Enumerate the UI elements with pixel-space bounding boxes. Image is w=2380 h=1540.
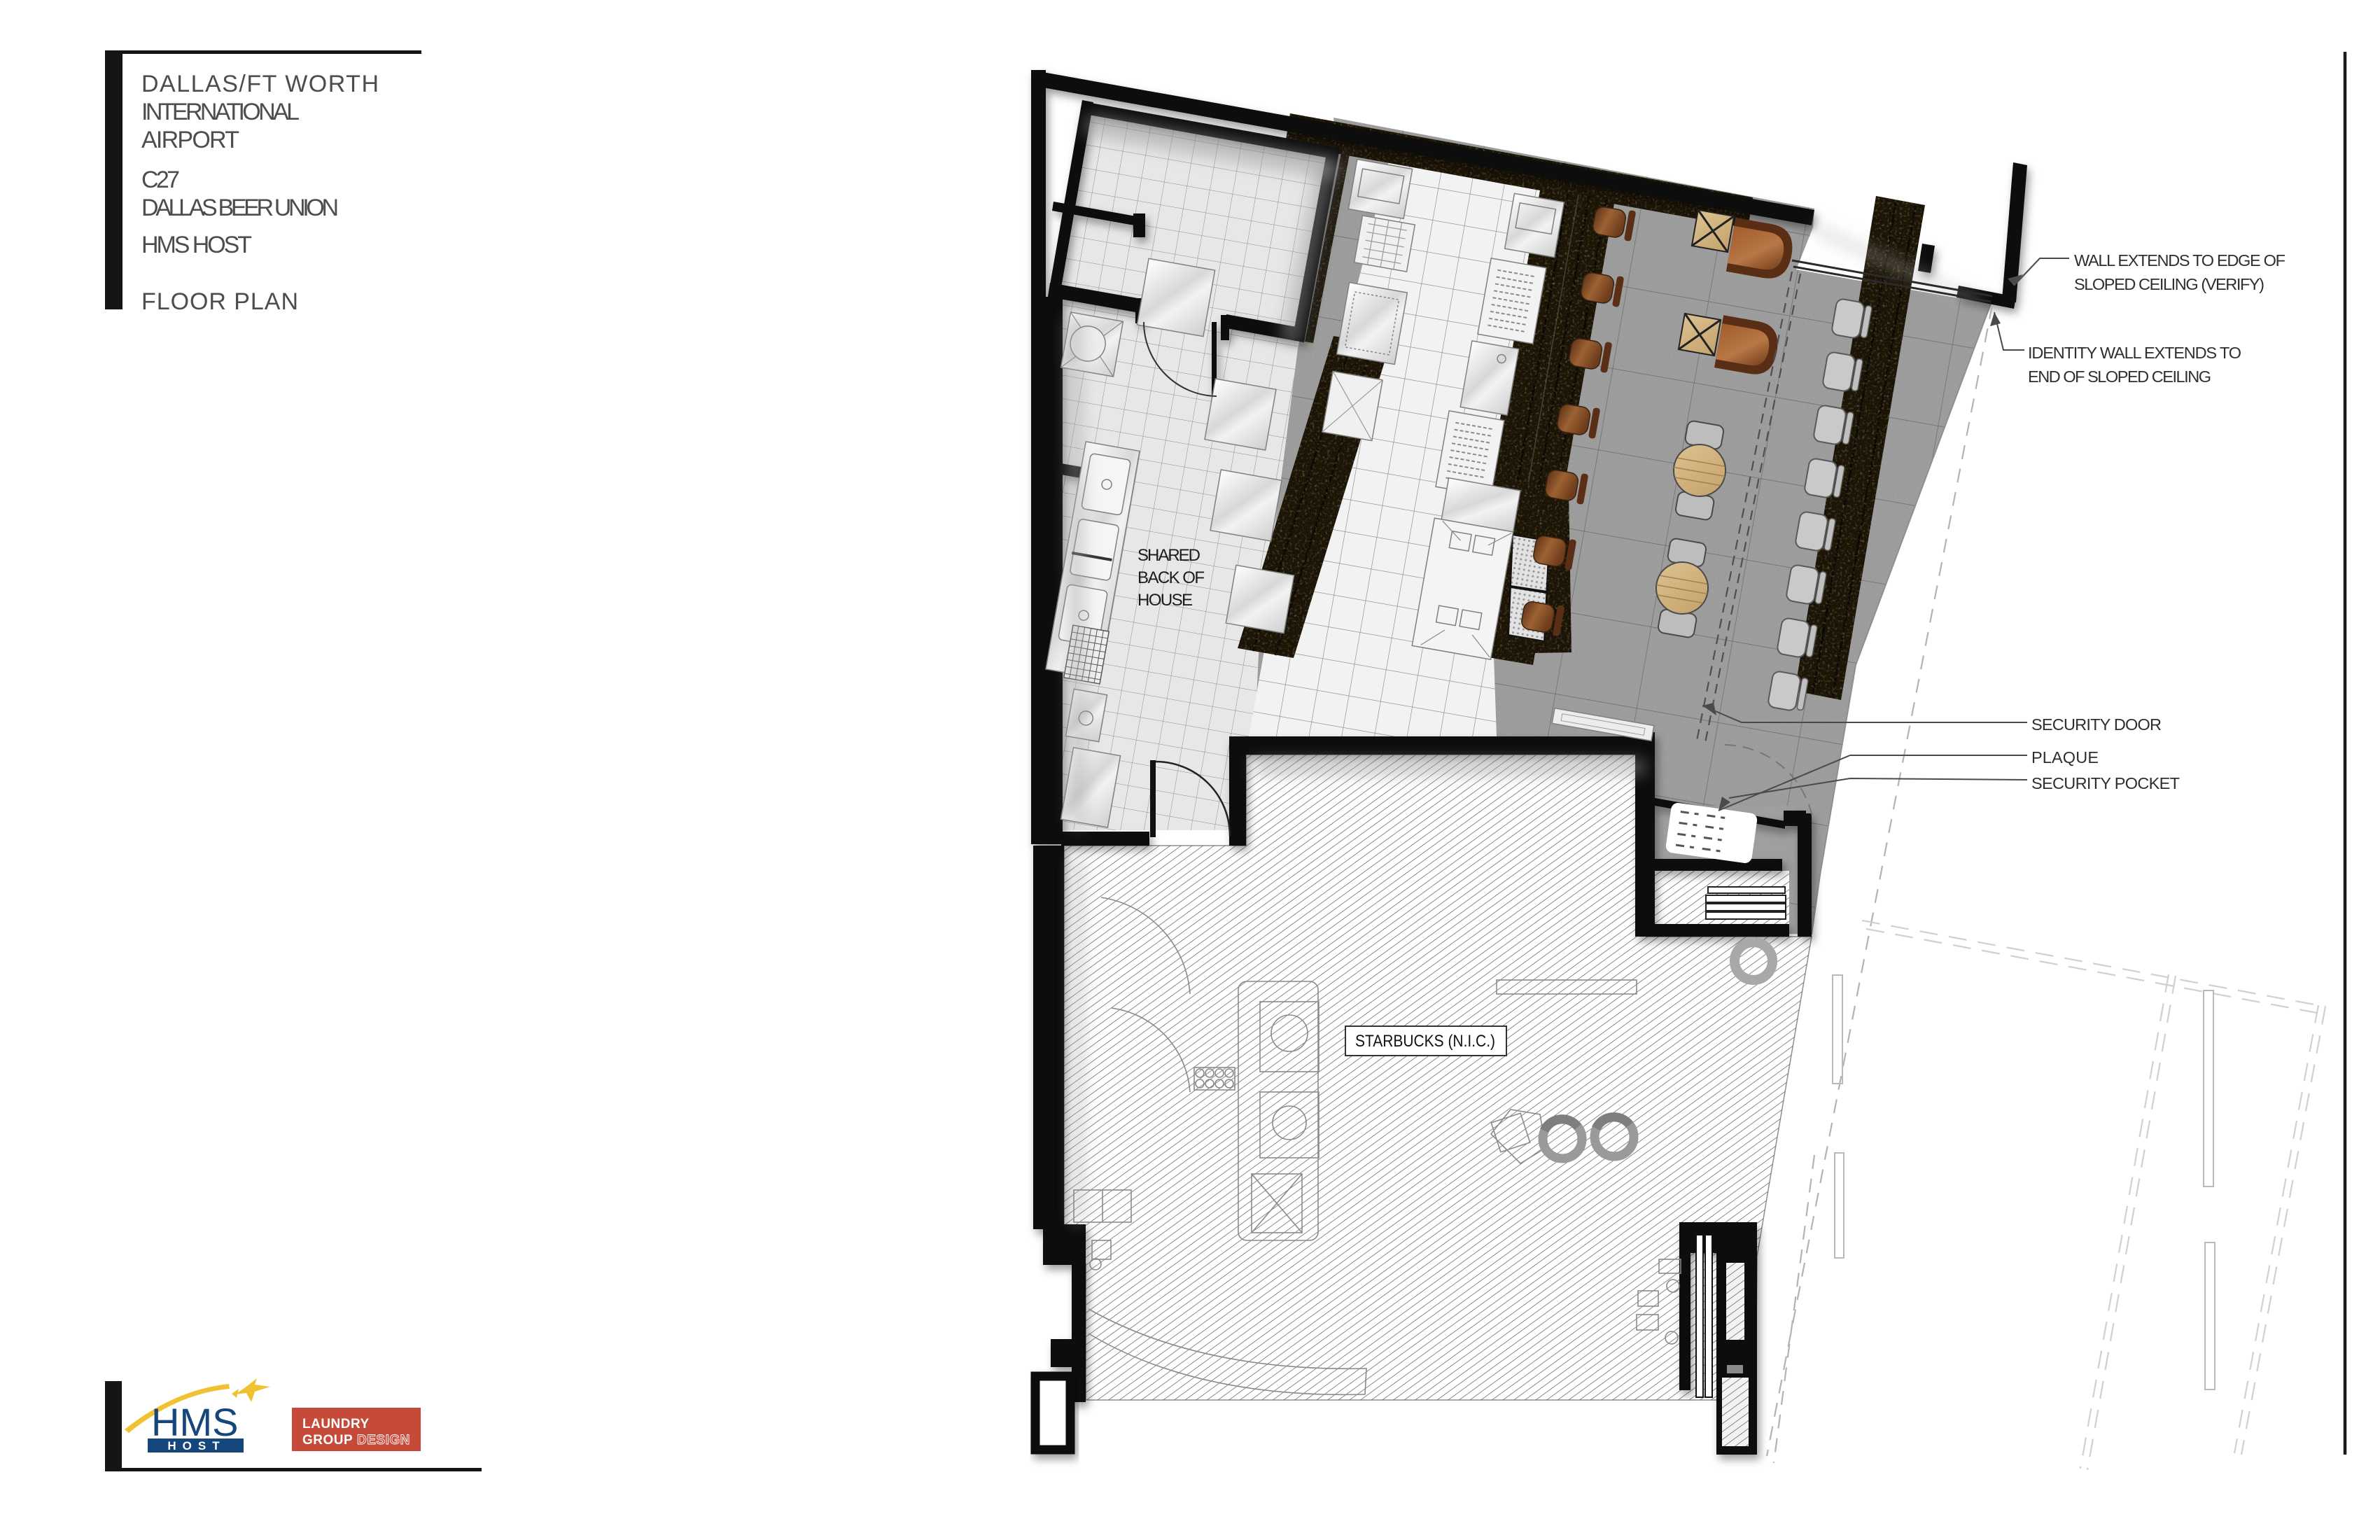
svg-text:SECURITY POCKET: SECURITY POCKET <box>2031 774 2180 792</box>
svg-text:GROUP: GROUP <box>302 1433 353 1448</box>
svg-text:BACK OF: BACK OF <box>1137 568 1205 587</box>
svg-text:SLOPED CEILING (VERIFY): SLOPED CEILING (VERIFY) <box>2074 275 2264 293</box>
svg-text:SHARED: SHARED <box>1137 546 1200 565</box>
svg-text:DALLAS BEER UNION: DALLAS BEER UNION <box>141 195 339 221</box>
svg-text:PLAQUE: PLAQUE <box>2031 748 2099 766</box>
svg-text:HOST: HOST <box>167 1439 225 1452</box>
svg-text:HOUSE: HOUSE <box>1137 591 1193 610</box>
svg-text:HMS HOST: HMS HOST <box>141 232 252 258</box>
svg-text:HMS: HMS <box>151 1400 238 1444</box>
svg-text:LAUNDRY: LAUNDRY <box>302 1417 370 1431</box>
svg-text:INTERNATIONAL: INTERNATIONAL <box>141 99 300 125</box>
svg-text:C27: C27 <box>141 167 180 193</box>
svg-text:DALLAS/FT WORTH: DALLAS/FT WORTH <box>141 71 379 97</box>
svg-text:DESIGN: DESIGN <box>357 1433 410 1448</box>
svg-text:FLOOR PLAN: FLOOR PLAN <box>141 288 298 315</box>
svg-text:STARBUCKS (N.I.C.): STARBUCKS (N.I.C.) <box>1355 1032 1495 1051</box>
svg-text:AIRPORT: AIRPORT <box>141 127 239 153</box>
svg-text:WALL EXTENDS TO EDGE OF: WALL EXTENDS TO EDGE OF <box>2074 251 2285 269</box>
svg-text:IDENTITY WALL EXTENDS TO: IDENTITY WALL EXTENDS TO <box>2028 344 2241 362</box>
svg-text:SECURITY DOOR: SECURITY DOOR <box>2031 715 2162 734</box>
svg-text:END OF SLOPED CEILING: END OF SLOPED CEILING <box>2028 367 2211 386</box>
